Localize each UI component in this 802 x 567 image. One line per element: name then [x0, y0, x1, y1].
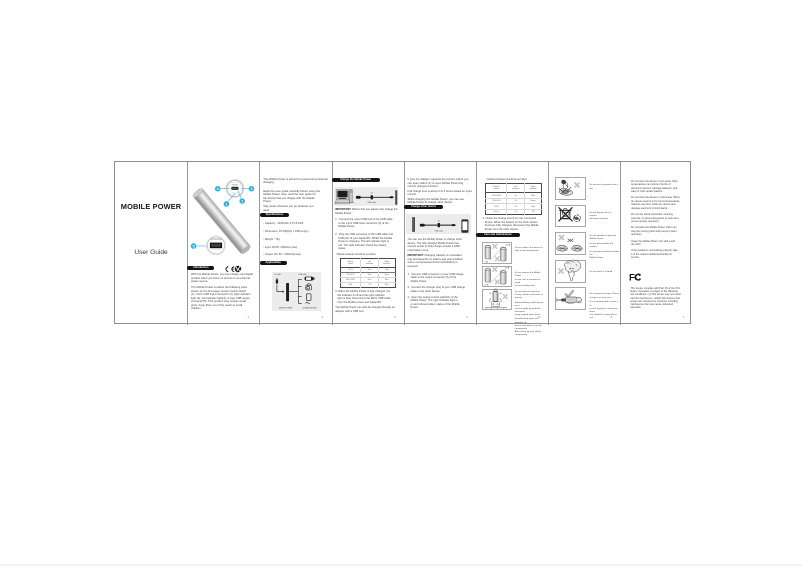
svg-text:DIGITAL DEVICES: DIGITAL DEVICES [303, 306, 318, 309]
svg-text:1: 1 [225, 202, 227, 206]
svg-text:-10℃: -10℃ [483, 285, 489, 287]
svg-text:+40℃: +40℃ [504, 268, 510, 270]
svg-text:+45℃: +45℃ [505, 245, 511, 247]
svg-text:3: 3 [250, 187, 252, 191]
svg-text:USB cable: USB cable [434, 230, 443, 232]
svg-text:0℃: 0℃ [484, 262, 488, 264]
svg-text:(5): (5) [438, 220, 441, 222]
svg-text:USB cable: USB cable [368, 202, 377, 204]
svg-text:DC USB: DC USB [274, 274, 281, 276]
svg-text:MOBILE POWER: MOBILE POWER [279, 307, 293, 309]
svg-text:(2): (2) [371, 192, 374, 194]
svg-text:USB cable: USB cable [299, 274, 307, 276]
svg-text:2: 2 [241, 199, 243, 203]
svg-text:5: 5 [193, 244, 195, 248]
